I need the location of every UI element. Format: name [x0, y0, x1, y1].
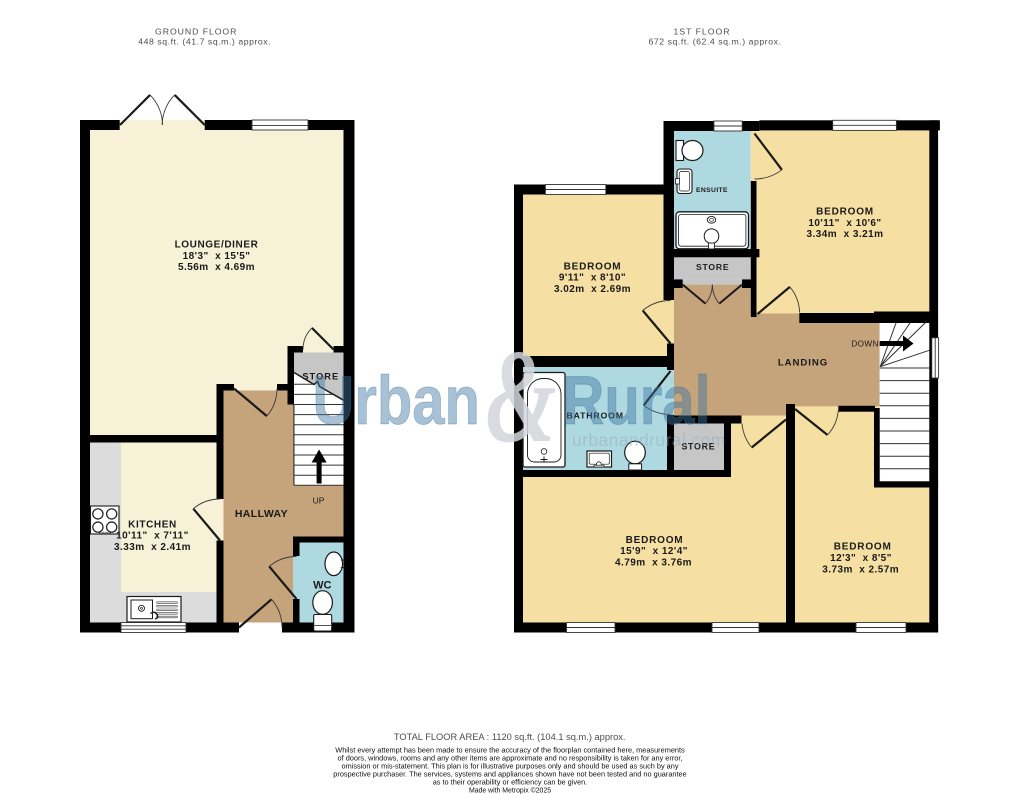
svg-text:10'11" x 10'6": 10'11" x 10'6"	[808, 218, 881, 229]
svg-text:10'11" x 7'11": 10'11" x 7'11"	[116, 531, 189, 542]
svg-text:ENSUITE: ENSUITE	[696, 187, 728, 194]
svg-text:as to their operability or eff: as to their operability or efficiency ca…	[433, 778, 588, 787]
svg-text:3.02m x 2.69m: 3.02m x 2.69m	[554, 284, 631, 295]
svg-text:448 sq.ft. (41.7 sq.m.) approx: 448 sq.ft. (41.7 sq.m.) approx.	[138, 37, 271, 47]
svg-text:LANDING: LANDING	[778, 357, 828, 368]
svg-text:urbanandrural.com: urbanandrural.com	[572, 430, 726, 450]
svg-text:18'3" x 15'5": 18'3" x 15'5"	[183, 251, 251, 262]
svg-text:12'3" x 8'5": 12'3" x 8'5"	[830, 553, 892, 564]
svg-text:TOTAL FLOOR AREA : 1120 sq.ft.: TOTAL FLOOR AREA : 1120 sq.ft. (104.1 sq…	[394, 732, 626, 742]
svg-text:BEDROOM: BEDROOM	[564, 262, 622, 273]
svg-text:&: &	[486, 322, 557, 471]
svg-text:4.79m x 3.76m: 4.79m x 3.76m	[615, 558, 692, 569]
svg-text:BEDROOM: BEDROOM	[626, 535, 684, 546]
svg-text:1ST FLOOR: 1ST FLOOR	[673, 26, 730, 36]
svg-text:GROUND FLOOR: GROUND FLOOR	[155, 26, 237, 36]
svg-text:672 sq.ft. (62.4 sq.m.) approx: 672 sq.ft. (62.4 sq.m.) approx.	[649, 37, 782, 47]
svg-text:KITCHEN: KITCHEN	[128, 520, 177, 531]
svg-text:Made with Metropix ©2025: Made with Metropix ©2025	[469, 787, 551, 794]
svg-text:Urban: Urban	[313, 361, 480, 439]
svg-text:Rural: Rural	[563, 361, 711, 439]
svg-text:3.33m x 2.41m: 3.33m x 2.41m	[114, 542, 191, 553]
svg-text:15'9" x 12'4": 15'9" x 12'4"	[620, 546, 688, 557]
svg-text:UP: UP	[313, 495, 325, 505]
svg-text:5.56m x 4.69m: 5.56m x 4.69m	[178, 262, 255, 273]
svg-text:3.73m x 2.57m: 3.73m x 2.57m	[822, 564, 899, 575]
svg-text:9'11" x 8'10": 9'11" x 8'10"	[559, 273, 626, 284]
svg-text:LOUNGE/DINER: LOUNGE/DINER	[175, 240, 259, 251]
svg-text:3.34m x 3.21m: 3.34m x 3.21m	[807, 229, 884, 240]
svg-text:DOWN: DOWN	[851, 340, 879, 349]
svg-text:WC: WC	[313, 580, 331, 592]
svg-text:STORE: STORE	[696, 262, 729, 272]
svg-text:HALLWAY: HALLWAY	[235, 508, 288, 520]
svg-text:BEDROOM: BEDROOM	[834, 542, 892, 553]
svg-text:BEDROOM: BEDROOM	[816, 207, 874, 218]
